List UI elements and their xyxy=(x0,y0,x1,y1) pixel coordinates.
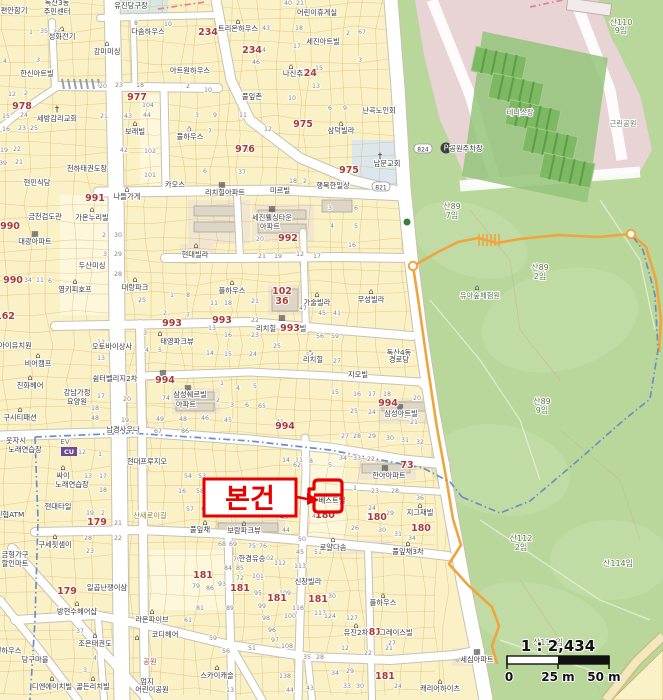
park-label: 9임 xyxy=(536,406,548,415)
parcel-number: 43 xyxy=(306,685,314,692)
parcel-number: 18 xyxy=(91,405,99,412)
parcel-number: 4 xyxy=(145,347,149,354)
parcel-number: 45 xyxy=(224,417,232,424)
parcel-number: 40 xyxy=(284,0,292,7)
place-label: 영키피호프 xyxy=(58,285,92,294)
place-label: 리치힐아파트 xyxy=(205,188,246,197)
parcel-number: 34 xyxy=(408,535,416,542)
parcel-number: 5 xyxy=(253,383,257,390)
parcel-number: 116 xyxy=(292,605,304,612)
place-label: 비어캠프 xyxy=(25,359,52,368)
scale-bar-filled xyxy=(558,656,609,664)
place-label: 쉼터벨리지2차 xyxy=(93,374,138,383)
parcel-number: 24 xyxy=(394,683,402,690)
parcel-number: 138 xyxy=(279,673,291,680)
special-label: EV xyxy=(60,437,70,446)
place-label: 두산미싱 xyxy=(79,261,106,270)
parcel-number: 75 xyxy=(248,543,256,550)
parcel-number: 22 xyxy=(367,456,375,463)
parcel-number: 54 xyxy=(184,473,192,480)
parcel-number: 18 xyxy=(99,487,107,494)
parcel-number: 31 xyxy=(394,531,402,538)
parcel-number: 17 xyxy=(313,253,321,260)
parcel-number: 18 xyxy=(383,391,391,398)
parcel-number: 2 xyxy=(216,397,220,404)
place-label: 구세핏샘이 xyxy=(38,540,72,549)
special-label: 공원주차장 xyxy=(449,144,483,153)
parcel-number: 29 xyxy=(386,510,394,517)
parcel-number: 98 xyxy=(262,615,270,622)
parcel-number: 14 xyxy=(206,350,214,357)
place-label: 금천검도관 xyxy=(28,212,62,221)
parcel-number: 6 xyxy=(48,278,52,285)
block-number: 181 xyxy=(230,583,250,594)
parcel-number: 11 xyxy=(210,300,218,307)
parcel-number: 33 xyxy=(353,455,361,462)
block-number: 73 xyxy=(400,460,413,471)
parcel-number: 27 xyxy=(333,358,341,365)
block-number: 975 xyxy=(339,165,359,176)
parcel-number: 43 xyxy=(262,25,270,32)
school-building-icon: ▦ xyxy=(278,313,286,322)
parcel-number: 34 xyxy=(24,277,32,284)
block-number: 180 xyxy=(411,523,431,534)
parcel-number: 17 xyxy=(97,393,105,400)
parcel-number: 44 xyxy=(143,112,151,119)
parcel-number: 44 xyxy=(286,687,294,694)
parcel-number: 8 xyxy=(134,20,138,27)
place-label: 강남가정 xyxy=(64,388,91,397)
place-label: 아이유치원 xyxy=(0,341,32,350)
place-label: 카오스 xyxy=(165,180,185,189)
place-label: 트리온하우스 xyxy=(218,24,259,33)
parcel-number: 13 xyxy=(208,325,216,332)
special-label: 유아숲체험원 xyxy=(460,291,500,300)
parcel-number: 28 xyxy=(391,488,399,495)
parcel-number: 85 xyxy=(236,565,244,572)
parcel-number: 3 xyxy=(230,402,234,409)
place-label: 유진2차 xyxy=(344,628,369,637)
parcel-number: 124 xyxy=(324,613,336,620)
place-label: 대랑파크 xyxy=(122,283,149,292)
place-label: 친화헤어 xyxy=(17,381,44,390)
parcel-number: 32 xyxy=(416,439,424,446)
place-label: 아파트 xyxy=(260,222,280,231)
parcel-number: 127 xyxy=(346,615,358,622)
place-label: 미르빌 xyxy=(270,186,290,195)
block-number: 993 xyxy=(212,315,232,326)
parcel-number: 10 xyxy=(204,87,212,94)
parcel-number: 57 xyxy=(186,506,194,513)
parcel-number: 24 xyxy=(368,505,376,512)
parcel-number: 67 xyxy=(358,29,366,36)
block-number: 978 xyxy=(12,101,32,112)
block-number: 994 xyxy=(155,375,175,386)
place-label: 삼성아트빌 xyxy=(384,409,418,418)
place-label: 노래연습장 xyxy=(8,445,42,454)
scale-label-0: 0 xyxy=(505,670,513,684)
parcel-number: 102 xyxy=(144,148,156,155)
place-label: 한신아트빌 xyxy=(20,69,54,78)
parcel-number: 45 xyxy=(318,310,326,317)
place-label: 다솜하우스 xyxy=(131,27,165,36)
block-number: 990 xyxy=(0,221,20,232)
parcel-number: 113 xyxy=(294,563,306,570)
parcel-number: 18 xyxy=(289,178,297,185)
place-label: 편안함기 xyxy=(1,6,28,15)
parcel-number: 35 xyxy=(40,28,48,35)
place-label: 코디헤어 xyxy=(152,630,179,639)
parcel-number: 8 xyxy=(186,292,190,299)
place-label: 유진당구장 xyxy=(114,1,148,10)
place-label: 경로당 xyxy=(389,355,409,364)
place-label: 성화전기 xyxy=(49,32,76,41)
bus-stop-icon xyxy=(403,218,411,226)
school-building-icon: ▦ xyxy=(268,204,276,213)
parcel-number: 3 xyxy=(83,667,87,674)
place-label: 강미미싱 xyxy=(94,47,121,56)
parcel-number: 26 xyxy=(351,525,359,532)
place-label: 행복한일상 xyxy=(316,181,350,190)
parcel-number: 24 xyxy=(20,112,28,119)
parcel-number: 104 xyxy=(142,102,154,109)
parcel-number: 34 xyxy=(331,670,339,677)
place-label: 현대빌라 xyxy=(182,250,209,259)
parcel-number: 96 xyxy=(268,627,276,634)
parcel-number: 3 xyxy=(143,330,147,337)
parcel-number: 21 xyxy=(296,0,304,7)
parcel-number: 20 xyxy=(413,395,421,402)
map-canvas: ⌂⌂⌂⌂⌂⌂⌂⌂⌂⌂⌂⌂⌂⌂⌂⌂⌂⌂⌂⌂⌂⌂⌂⌂⌂⌂⌂⌂⌂⌂⌂⌂⌂⌂⌂⌂⌂⌂▦▦… xyxy=(0,0,663,700)
park-label: 2임 xyxy=(534,272,546,281)
special-label: 테니스장 xyxy=(507,108,534,117)
trail-node-icon xyxy=(409,262,417,270)
parcel-number: 17 xyxy=(293,43,301,50)
parcel-number: 19 xyxy=(121,417,129,424)
parcel-number: 28 xyxy=(316,654,324,661)
parcel-number: 72 xyxy=(236,575,244,582)
parcel-number: 16 xyxy=(178,488,186,495)
parcel-number: 65 xyxy=(258,403,266,410)
block-number: 991 xyxy=(85,193,105,204)
parcel-number: 18 xyxy=(295,25,303,32)
parcel-number: 9 xyxy=(213,112,217,119)
place-label: 가술빌라 xyxy=(304,298,331,307)
parcel-number: 15 xyxy=(331,389,339,396)
parcel-number: 12 xyxy=(78,449,86,456)
parcel-number: 2 xyxy=(163,310,167,317)
block-number: 993 xyxy=(280,323,300,334)
building-icon: ⌂ xyxy=(193,241,198,250)
parcel-number: 13 xyxy=(84,473,92,480)
park-label: 9임 xyxy=(615,26,627,35)
parcel-number: 97 xyxy=(271,637,279,644)
parcel-number: 79 xyxy=(192,583,200,590)
parcel-number: 19 xyxy=(86,510,94,517)
parcel-number: 23 xyxy=(115,82,123,89)
trail-node-icon xyxy=(627,230,635,238)
parcel-number: 1 xyxy=(220,380,224,387)
block-number: 234 xyxy=(198,27,218,38)
place-label: 구시티패션 xyxy=(3,413,37,422)
parcel-number: 100 xyxy=(284,613,296,620)
place-label: 신창빌라 xyxy=(295,577,322,586)
parcel-number: 50 xyxy=(298,536,306,543)
place-label: 골든리치빌 xyxy=(76,682,110,691)
place-label: 플하우스 xyxy=(370,598,397,607)
parcel-number: 86 xyxy=(181,428,189,435)
parcel-number: 4 xyxy=(93,655,97,662)
scale-label-25: 25 m xyxy=(541,670,574,684)
road-number-text: 821 xyxy=(375,185,387,192)
block-number: 180 xyxy=(367,512,387,523)
parcel-number: 1 xyxy=(98,451,102,458)
parcel-number: 56 xyxy=(316,333,324,340)
place-label: 세진아트빌 xyxy=(306,37,340,46)
place-label: 빌 xyxy=(300,324,307,333)
parcel-number: 42 xyxy=(120,147,128,154)
parcel-number: 22 xyxy=(114,535,122,542)
place-label: 방현수헤어샵 xyxy=(57,607,98,616)
parcel-number: 59 xyxy=(209,635,217,642)
parcel-number: 20 xyxy=(99,83,107,90)
block-number: 179 xyxy=(57,586,77,597)
parcel-number: 35 xyxy=(303,654,311,661)
parcel-number: 11 xyxy=(36,277,44,284)
parcel-number: 51 xyxy=(248,645,256,652)
parcel-number: 22 xyxy=(251,317,259,324)
parcel-number: 76 xyxy=(259,543,267,550)
parcel-number: 3 xyxy=(358,57,362,64)
parcel-number: 11 xyxy=(239,112,247,119)
parcel-number: 68 xyxy=(218,541,226,548)
parcel-number: 27 xyxy=(388,640,396,647)
cu-store-label: CU xyxy=(64,448,74,456)
cadastral-map: ⌂⌂⌂⌂⌂⌂⌂⌂⌂⌂⌂⌂⌂⌂⌂⌂⌂⌂⌂⌂⌂⌂⌂⌂⌂⌂⌂⌂⌂⌂⌂⌂⌂⌂⌂⌂⌂⌂▦▦… xyxy=(0,0,663,700)
parcel-number: 67 xyxy=(154,428,162,435)
place-label: 나들가게 xyxy=(114,192,141,201)
place-label: 그레이스빌 xyxy=(379,628,413,637)
parcel-number: 30 xyxy=(356,683,364,690)
parcel-number: 49 xyxy=(156,416,164,423)
place-label: 무성빌라 xyxy=(358,295,385,304)
parcel-number: 12 xyxy=(8,91,16,98)
parcel-number: 36 xyxy=(416,495,424,502)
place-label: 삼덕빌라 xyxy=(328,126,355,135)
parcel-number: 34 xyxy=(339,455,347,462)
parcel-number: 22 xyxy=(364,650,372,657)
parcel-number: 44 xyxy=(282,527,290,534)
place-label: 아파트 xyxy=(176,400,196,409)
block-number: 181 xyxy=(375,671,395,682)
block-number: 234 xyxy=(242,45,262,56)
parcel-number: 45 xyxy=(296,549,304,556)
parcel-number: 25 xyxy=(30,125,38,132)
place-label: 한아아파트 xyxy=(372,471,406,480)
parcel-number: 108 xyxy=(281,643,293,650)
place-label: 풀잎채 xyxy=(190,525,210,534)
parcel-number: 21 xyxy=(15,159,23,166)
place-label: 남문교회 xyxy=(374,159,401,168)
parking-icon-letter: P xyxy=(444,144,449,153)
place-label: 풀잎촌 xyxy=(242,92,262,101)
road-number-text: 824 xyxy=(417,147,429,154)
block-number: 181 xyxy=(308,594,328,605)
block-number: 181 xyxy=(193,570,213,581)
parcel-number: 29 xyxy=(346,668,354,675)
parcel-number: 17 xyxy=(99,473,107,480)
scale-ratio: 1 : 2,434 xyxy=(521,637,595,655)
special-label: 공원 xyxy=(143,657,156,666)
parcel-number: 1 xyxy=(170,292,174,299)
parcel-number: 17 xyxy=(368,391,376,398)
parcel-number: 25 xyxy=(350,408,358,415)
parcel-number: 101 xyxy=(144,172,156,179)
parcel-number: 30 xyxy=(378,527,386,534)
parcel-number: 2 xyxy=(101,510,105,517)
place-label: 대광아파트 xyxy=(18,237,52,246)
parcel-number: 25 xyxy=(138,297,146,304)
parcel-number: 84 xyxy=(224,565,232,572)
block-number: 990 xyxy=(3,275,23,286)
block-number: 975 xyxy=(293,119,313,130)
block-number: 162 xyxy=(0,311,15,322)
place-label: 현대프루지오 xyxy=(127,457,168,466)
parcel-number: 74 xyxy=(162,395,170,402)
parcel-number: 28 xyxy=(84,535,92,542)
parcel-number: 3 xyxy=(195,112,199,119)
place-label: 디엔에이치빌 xyxy=(32,682,72,691)
parcel-number: 28 xyxy=(114,271,122,278)
parcel-number: 19 xyxy=(0,147,8,154)
parcel-number: 21 xyxy=(251,298,259,305)
parcel-number: 56 xyxy=(222,648,230,655)
parcel-number: 27 xyxy=(341,433,349,440)
parcel-number: 81 xyxy=(196,605,204,612)
place-label: 지오빌 xyxy=(348,370,368,379)
place-label: 세진휄싱타운 xyxy=(252,213,293,222)
parcel-number: 21 xyxy=(114,520,122,527)
parcel-number: 19 xyxy=(274,253,282,260)
place-label: 라온파이브 xyxy=(135,615,169,624)
place-label: 남경사우나 xyxy=(106,425,140,434)
parcel-number: 16 xyxy=(348,242,356,249)
parcel-number: 13 xyxy=(97,355,105,362)
parcel-number: 9 xyxy=(343,105,347,112)
special-label: 근린공원 xyxy=(610,119,637,128)
parcel-number: 1 xyxy=(353,485,357,492)
place-label: 보래빌 xyxy=(125,127,145,136)
parcel-number: 37 xyxy=(238,169,246,176)
block-number: 994 xyxy=(378,398,398,409)
parcel-number: 46 xyxy=(201,415,209,422)
parcel-number: 41 xyxy=(333,310,341,317)
parcel-number: 18 xyxy=(224,300,232,307)
parcel-number: 61 xyxy=(184,617,192,624)
parcel-number: 16 xyxy=(2,126,10,133)
parcel-number: 16 xyxy=(353,391,361,398)
parcel-number: 23 xyxy=(86,548,94,555)
parcel-number: 112 xyxy=(274,560,286,567)
parcel-number: 4 xyxy=(236,385,240,392)
place-label: 난곡노인회 xyxy=(362,106,396,115)
parcel-number: 30 xyxy=(114,232,122,239)
block-number: 993 xyxy=(162,318,182,329)
parcel-number: 10 xyxy=(164,21,172,28)
place-label: 풀잎채3차 xyxy=(392,547,424,556)
place-label: 한경유승 xyxy=(239,554,266,563)
place-label: 가온누리빌 xyxy=(75,213,109,222)
parcel-number: 21 xyxy=(100,113,108,120)
place-label: 태영파크뷰 xyxy=(160,337,194,346)
parcel-number: 6 xyxy=(203,168,207,175)
parcel-number: 86 xyxy=(206,585,214,592)
place-label: 오토바이상사 xyxy=(92,342,133,351)
parcel-number: 29 xyxy=(368,433,376,440)
park-label: 산89 xyxy=(443,201,461,211)
parcel-number: 12 xyxy=(296,251,304,258)
block-number: 994 xyxy=(275,421,295,432)
parcel-number: 69 xyxy=(229,541,237,548)
parcel-number: 7 xyxy=(186,312,190,319)
place-label: 독산3동 xyxy=(45,0,70,7)
parcel-number: 12 xyxy=(341,645,349,652)
parcel-number: 93 xyxy=(218,581,226,588)
parcel-number: 7 xyxy=(208,128,212,135)
parcel-number: 48 xyxy=(91,415,99,422)
place-label: 캐리어하이츠 xyxy=(420,684,461,693)
parcel-number: 20 xyxy=(256,236,264,243)
parcel-number: 39 xyxy=(0,160,7,167)
parcel-number: 21 xyxy=(410,419,418,426)
parcel-number: 25 xyxy=(273,343,281,350)
parcel-number: 62 xyxy=(293,462,301,469)
parcel-number: 99 xyxy=(258,603,266,610)
place-label: 플하우스 xyxy=(219,286,246,295)
parcel-number: 4 xyxy=(3,58,7,65)
place-label: 풀하우스 xyxy=(177,132,204,141)
parcel-number: 28 xyxy=(353,433,361,440)
parcel-number: 2 xyxy=(303,178,307,185)
place-label: 보람파크뷰 xyxy=(227,526,261,535)
parcel-number: 2 xyxy=(102,232,106,239)
parcel-number: 15 xyxy=(2,113,10,120)
parcel-number: 5 xyxy=(158,347,162,354)
place-label: 리치힐 xyxy=(303,355,323,364)
place-label: 금형가구 xyxy=(2,550,29,559)
place-label: 어린이공원 xyxy=(135,685,169,694)
place-label: 노래연습장 xyxy=(55,480,89,489)
place-label: 당구마을 xyxy=(22,655,49,664)
place-label: 요양원 xyxy=(67,397,87,406)
park-label: 산112 xyxy=(510,533,533,543)
parcel-number: 18 xyxy=(136,82,144,89)
place-label: 나신주 xyxy=(283,69,303,78)
block-number: 181 xyxy=(267,593,287,604)
parcel-number: 33 xyxy=(343,683,351,690)
block-number: 36 xyxy=(275,296,289,307)
parcel-number: 6 xyxy=(245,402,249,409)
annotation-label: 본건 xyxy=(225,484,275,515)
place-label: 신협ATM xyxy=(0,510,24,519)
place-label: 웃자시 xyxy=(6,436,26,445)
park-label: 산114임 xyxy=(603,558,633,568)
block-number: 992 xyxy=(278,233,298,244)
parcel-number: 5 xyxy=(354,223,358,230)
parcel-number: 5 xyxy=(328,462,332,469)
parcel-number: 2 xyxy=(24,90,28,97)
parcel-number: 8 xyxy=(309,458,313,465)
